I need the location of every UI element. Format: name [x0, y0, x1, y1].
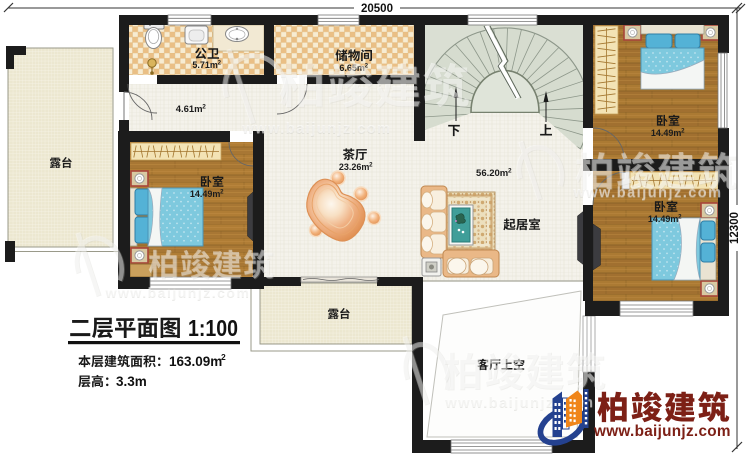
svg-text:23.26m: 23.26m	[339, 162, 370, 172]
svg-text:2: 2	[218, 60, 222, 67]
svg-text:12300: 12300	[729, 212, 741, 244]
svg-text:5.71m: 5.71m	[192, 60, 218, 70]
svg-text:www.baijunjz.com: www.baijunjz.com	[572, 185, 722, 201]
svg-text:14.49m: 14.49m	[190, 189, 221, 199]
svg-text:2: 2	[221, 352, 226, 362]
svg-text:14.49m: 14.49m	[648, 214, 679, 224]
svg-text:2: 2	[220, 189, 224, 196]
svg-text:www.baijunjz.com: www.baijunjz.com	[105, 284, 251, 300]
svg-text:3.3m: 3.3m	[116, 374, 147, 389]
svg-text:www.baijunjz.com: www.baijunjz.com	[241, 121, 391, 137]
svg-text:56.20m: 56.20m	[476, 168, 508, 179]
svg-text:2: 2	[202, 104, 206, 111]
svg-text:2: 2	[508, 168, 512, 175]
svg-text:2: 2	[678, 214, 682, 221]
svg-text:www.baijunjz.com: www.baijunjz.com	[593, 423, 731, 440]
svg-text:163.09m: 163.09m	[169, 354, 222, 369]
svg-text:2: 2	[369, 162, 373, 169]
svg-text:2: 2	[681, 128, 685, 135]
svg-text:14.49m: 14.49m	[651, 128, 682, 138]
svg-text:4.61m: 4.61m	[176, 104, 203, 115]
svg-text:20500: 20500	[361, 3, 393, 15]
svg-text:1:100: 1:100	[188, 315, 238, 341]
